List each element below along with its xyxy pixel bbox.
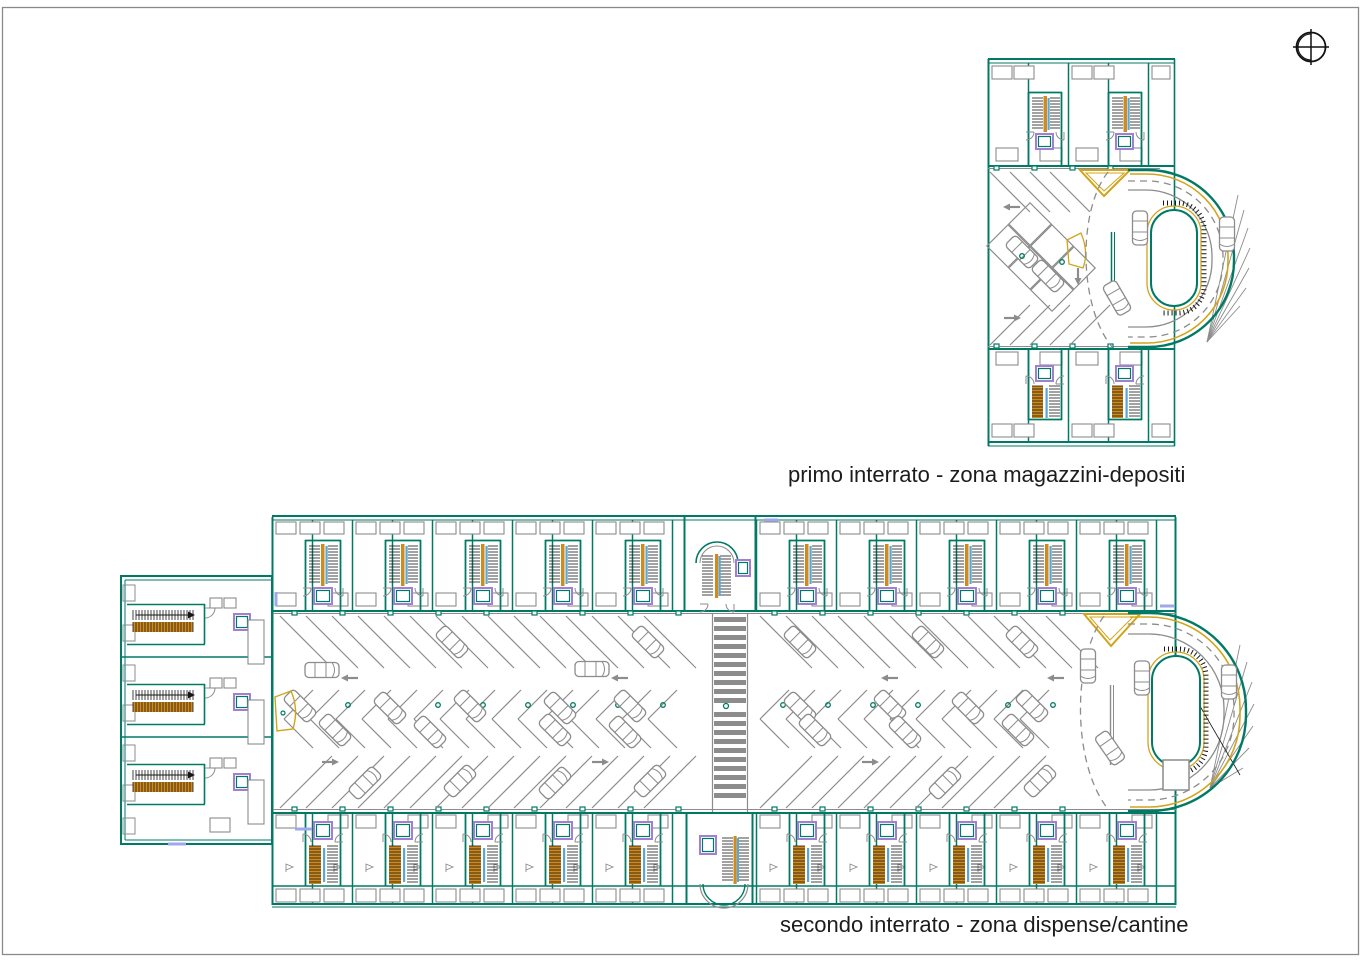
parking-zone [987, 166, 1160, 348]
car-icon [1094, 730, 1126, 766]
car-icon [283, 689, 318, 724]
car-icon [928, 766, 963, 801]
car-icon [1135, 661, 1150, 695]
car-icon [453, 689, 488, 724]
direction-arrow-icon [322, 759, 339, 766]
car-icon [443, 764, 478, 799]
elevator-glyph [554, 588, 572, 604]
caption-secondo-interrato: secondo interrato - zona dispense/cantin… [780, 912, 1188, 938]
elevator-glyph [1038, 588, 1056, 604]
car-icon [1005, 235, 1040, 270]
elevator-glyph [878, 822, 896, 839]
caption-primo-interrato: primo interrato - zona magazzini-deposit… [788, 462, 1185, 488]
plan-secondo-interrato [121, 516, 1254, 908]
elevator-glyph [1036, 366, 1053, 381]
elevator-glyph [634, 822, 652, 839]
direction-arrow-icon [862, 759, 879, 766]
car-icon [1023, 764, 1058, 799]
storage-band [988, 349, 1175, 446]
car-icon [1001, 713, 1036, 748]
elevator-glyph [1036, 134, 1053, 149]
direction-arrow-icon [1047, 675, 1064, 682]
storage-band [988, 59, 1175, 166]
direction-arrow-icon [611, 675, 628, 682]
direction-arrow-icon [341, 675, 358, 682]
direction-arrow-icon [881, 675, 898, 682]
elevator-glyph [958, 822, 976, 839]
car-icon [1081, 649, 1096, 683]
elevator-glyph [474, 822, 492, 839]
car-icon [538, 766, 573, 801]
car-icon [435, 625, 470, 660]
staircase-glyph [687, 813, 753, 908]
car-icon [631, 625, 666, 660]
plan-primo-interrato [987, 59, 1250, 446]
elevator-glyph [958, 588, 976, 604]
elevator-glyph [1038, 822, 1056, 839]
staircase-glyph [127, 764, 215, 805]
elevator-glyph [1116, 134, 1133, 149]
car-icon [413, 715, 448, 750]
car-icon [575, 662, 609, 677]
elevator-glyph [878, 588, 896, 604]
car-icon [951, 691, 986, 726]
elevator-glyph [1118, 822, 1136, 839]
car-icon [1133, 211, 1148, 245]
elevator-glyph [700, 836, 716, 854]
storage-band [272, 813, 1176, 908]
direction-arrow-icon [1003, 204, 1020, 211]
car-icon [1220, 217, 1235, 251]
elevator-glyph [736, 560, 750, 576]
elevator-glyph [474, 588, 492, 604]
drawing-sheet: primo interrato - zona magazzini-deposit… [0, 0, 1362, 962]
direction-arrow-icon [592, 759, 609, 766]
car-icon [305, 663, 339, 678]
elevator-glyph [798, 588, 816, 604]
storage-band [272, 516, 1176, 612]
elevator-glyph [394, 588, 412, 604]
car-icon [1102, 280, 1132, 317]
compass-crosshair-icon [1293, 29, 1329, 65]
elevator-glyph [1118, 588, 1136, 604]
elevator-glyph [1116, 366, 1133, 381]
car-icon [373, 691, 408, 726]
staircase-glyph [127, 684, 215, 725]
elevator-glyph [798, 822, 816, 839]
car-icon [348, 766, 383, 801]
elevator-glyph [314, 822, 332, 839]
ramp-loop [1086, 170, 1250, 347]
staircase-glyph [127, 604, 215, 645]
elevator-glyph [314, 588, 332, 604]
left-wing [121, 576, 272, 844]
car-icon [633, 764, 668, 799]
car-icon [1222, 665, 1237, 699]
elevator-glyph [394, 822, 412, 839]
elevator-glyph [634, 588, 652, 604]
elevator-glyph [554, 822, 572, 839]
direction-arrow-icon [1004, 315, 1021, 322]
internal-ramp-strip [713, 613, 748, 812]
car-icon [1015, 689, 1050, 724]
ramp-loop [1080, 613, 1254, 811]
